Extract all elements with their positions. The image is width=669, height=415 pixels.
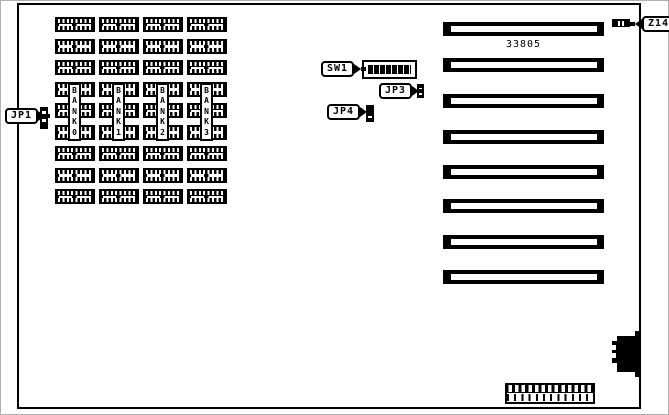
callout-sw1: SW1 [321, 61, 366, 77]
callout-arrow-icon [354, 64, 361, 74]
memory-chip-icon [55, 60, 95, 75]
callout-z14: Z14 [630, 16, 669, 32]
bank-label: B A N K 1 [112, 83, 125, 141]
connector-teeth-row [507, 394, 593, 401]
slot-contact-stripe [451, 274, 597, 280]
memory-chip-icon [55, 39, 95, 54]
bottom-connector-icon [505, 383, 595, 404]
callout-arrow-icon [38, 111, 45, 121]
slot-contact-stripe [451, 169, 597, 175]
expansion-slot [443, 58, 604, 72]
memory-chip-icon [187, 146, 227, 161]
memory-chip-icon [99, 60, 139, 75]
slot-contact-stripe [451, 98, 597, 104]
jp1-label: JP1 [5, 108, 38, 124]
memory-chip-icon [143, 168, 183, 183]
memory-chip-icon [187, 168, 227, 183]
memory-chip-icon [99, 39, 139, 54]
memory-chip-icon [187, 189, 227, 204]
expansion-slot [443, 165, 604, 179]
z14-component-icon [612, 19, 630, 27]
dip-switch-cells [368, 65, 411, 74]
memory-chip-icon [99, 17, 139, 32]
memory-chip-icon [143, 17, 183, 32]
callout-arrow-bar [45, 114, 50, 118]
callout-arrow-icon [412, 86, 419, 96]
memory-chip-icon [55, 189, 95, 204]
callout-arrow-bar [367, 110, 372, 114]
slot-contact-stripe [451, 203, 597, 209]
slot-contact-stripe [451, 62, 597, 68]
motherboard-diagram: B A N K 0B A N K 1B A N K 2B A N K 3 338… [0, 0, 669, 415]
expansion-slot [443, 22, 604, 36]
memory-chip-icon [99, 146, 139, 161]
bank-label: B A N K 3 [200, 83, 213, 141]
expansion-slot [443, 235, 604, 249]
memory-chip-icon [187, 39, 227, 54]
callout-arrow-bar [419, 89, 424, 93]
expansion-slot [443, 199, 604, 213]
part-number-label: 33805 [443, 39, 604, 50]
callout-jp3: JP3 [379, 83, 424, 99]
sw1-dip-switch-icon [362, 60, 417, 79]
slot-contact-stripe [451, 134, 597, 140]
callout-jp4: JP4 [327, 104, 372, 120]
z14-label: Z14 [642, 16, 669, 32]
memory-chip-icon [143, 189, 183, 204]
jp3-label: JP3 [379, 83, 412, 99]
connector-pin-row [507, 385, 593, 393]
slot-contact-stripe [451, 239, 597, 245]
memory-chip-icon [55, 146, 95, 161]
memory-chip-icon [143, 60, 183, 75]
callout-arrow-icon [635, 19, 642, 29]
expansion-slot [443, 270, 604, 284]
callout-arrow-bar [361, 67, 366, 71]
bank-label: B A N K 0 [68, 83, 81, 141]
memory-chip-icon [143, 39, 183, 54]
memory-chip-icon [55, 17, 95, 32]
expansion-slot [443, 130, 604, 144]
memory-chip-icon [187, 60, 227, 75]
expansion-slot [443, 94, 604, 108]
memory-chip-icon [99, 189, 139, 204]
memory-chip-icon [55, 168, 95, 183]
memory-chip-icon [99, 168, 139, 183]
jp4-label: JP4 [327, 104, 360, 120]
memory-chip-icon [187, 17, 227, 32]
callout-jp1: JP1 [5, 108, 50, 124]
sw1-label: SW1 [321, 61, 354, 77]
slot-contact-stripe [451, 26, 597, 32]
bank-label: B A N K 2 [156, 83, 169, 141]
callout-arrow-icon [360, 107, 367, 117]
memory-chip-icon [143, 146, 183, 161]
